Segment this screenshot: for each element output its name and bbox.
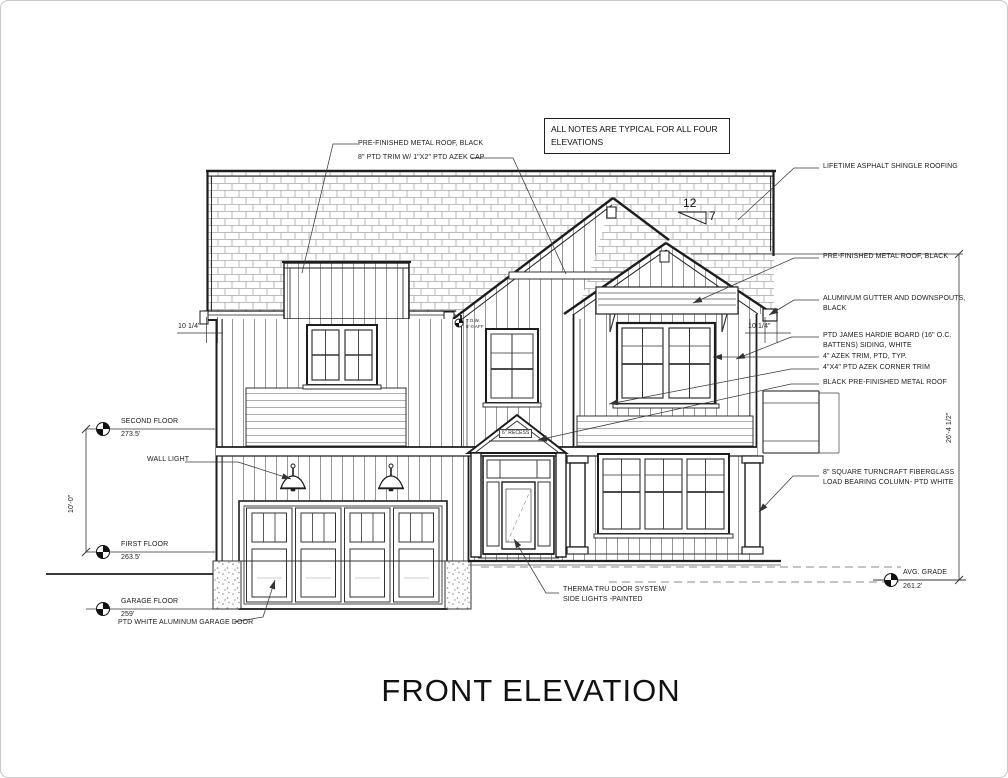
general-notes-box: ALL NOTES ARE TYPICAL FOR ALL FOUR ELEVA…	[544, 118, 730, 154]
note-corner-trim: 4"X4" PTD AZEK CORNER TRIM	[823, 363, 930, 373]
note-black-metal-roof: BLACK PRE-FINISHED METAL ROOF	[823, 378, 947, 388]
datum-first-floor	[97, 546, 110, 559]
note-therma-door-line2: SIDE LIGHTS -PAINTED	[563, 595, 643, 605]
elevation-sheet: ALL NOTES ARE TYPICAL FOR ALL FOUR ELEVA…	[0, 0, 1008, 778]
datum-avg-grade	[885, 574, 898, 587]
slope-run: 12	[683, 198, 697, 208]
datum-tow	[455, 319, 463, 327]
note-hardie-siding: PTD JAMES HARDIE BOARD (16" O.C.	[823, 331, 952, 341]
dim-overall-height: 26'-4 1/2"	[945, 412, 955, 443]
note-recess: 6" RECESS	[499, 429, 532, 438]
general-note-line: ELEVATIONS	[551, 136, 723, 149]
dim-eave-right: 10 1/4"	[748, 322, 771, 332]
level-second-floor-elev: 273.5'	[121, 430, 140, 440]
note-therma-door: THERMA TRU DOOR SYSTEM/	[563, 585, 666, 595]
drawing-title: FRONT ELEVATION	[381, 673, 680, 709]
column	[742, 456, 763, 554]
note-column-line2: LOAD BEARING COLUMN- PTD WHITE	[823, 478, 954, 488]
level-avg-grade-elev: 261.2'	[903, 582, 922, 592]
level-first-floor-elev: 263.5'	[121, 553, 140, 563]
level-second-floor-name: SECOND FLOOR	[121, 417, 178, 427]
datum-second-floor	[97, 423, 110, 436]
note-shingle-roofing: LIFETIME ASPHALT SHINGLE ROOFING	[823, 162, 958, 172]
note-prefinished-metal-roof-right: PRE-FINISHED METAL ROOF, BLACK	[823, 252, 948, 262]
note-prefinished-metal-roof-top: PRE-FINISHED METAL ROOF, BLACK	[358, 139, 483, 149]
note-azek-trim: 4" AZEK TRIM, PTD, TYP.	[823, 352, 907, 362]
note-gutter-line2: BLACK	[823, 304, 846, 314]
note-gutter: ALUMINUM GUTTER AND DOWNSPOUTS,	[823, 294, 965, 304]
note-tow-aff: 8'-0 AFF	[466, 324, 484, 329]
elevation-drawing	[1, 1, 1007, 777]
level-first-floor-name: FIRST FLOOR	[121, 540, 168, 550]
note-column: 8" SQUARE TURNCRAFT FIBERGLASS	[823, 468, 954, 478]
dormer	[282, 262, 411, 319]
grade-lines	[46, 561, 901, 582]
note-tow: T.O.W.	[466, 318, 480, 323]
datum-garage-floor	[97, 603, 110, 616]
note-hardie-siding-line2: BATTENS) SIDING, WHITE	[823, 341, 912, 351]
dim-eave-left: 10 1/4"	[178, 322, 201, 332]
level-avg-grade-name: AVG. GRADE	[903, 568, 947, 578]
general-note-line: ALL NOTES ARE TYPICAL FOR ALL FOUR	[551, 123, 723, 136]
slope-rise: 7	[709, 211, 716, 221]
column	[567, 456, 588, 554]
level-garage-floor-name: GARAGE FLOOR	[121, 597, 178, 607]
note-wall-light: WALL LIGHT	[147, 455, 189, 465]
note-garage-door: PTD WHITE ALUMINUM GARAGE DOOR	[118, 618, 253, 628]
dim-floor-to-floor: 10'-0"	[67, 495, 77, 513]
side-wing	[763, 391, 839, 453]
note-azek-cap: 8" PTD TRIM W/ 1"X2" PTD AZEK CAP	[358, 153, 485, 163]
